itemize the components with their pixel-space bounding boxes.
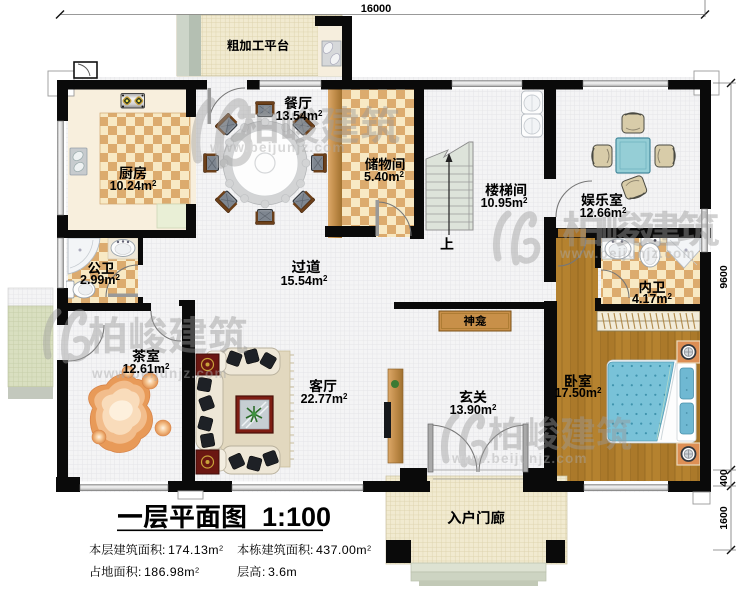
svg-text:13.90m2: 13.90m2 (450, 403, 497, 417)
svg-text:174.13m2: 174.13m2 (168, 543, 224, 557)
svg-text::: : (162, 543, 165, 557)
svg-text:17.50m2: 17.50m2 (555, 386, 602, 400)
svg-text::: : (310, 543, 313, 557)
svg-text:15.54m2: 15.54m2 (281, 274, 328, 288)
svg-text:437.00m2: 437.00m2 (316, 543, 372, 557)
svg-text:12.61m2: 12.61m2 (123, 362, 170, 376)
svg-text:2.99m2: 2.99m2 (80, 273, 120, 287)
svg-text:10.95m2: 10.95m2 (481, 196, 528, 210)
svg-text:www.beijunjz.com: www.beijunjz.com (209, 140, 346, 155)
svg-text:4.17m2: 4.17m2 (632, 292, 672, 306)
svg-text:www.beijunjz.com: www.beijunjz.com (451, 451, 588, 466)
svg-text:186.98m2: 186.98m2 (144, 565, 200, 579)
svg-text:12.66m2: 12.66m2 (580, 206, 627, 220)
svg-text:22.77m2: 22.77m2 (301, 392, 348, 406)
svg-text:16000: 16000 (361, 3, 392, 15)
svg-text:3.6m: 3.6m (268, 565, 297, 579)
svg-text:www.beijunjz.com: www.beijunjz.com (559, 246, 696, 261)
svg-text:400: 400 (718, 469, 730, 487)
svg-text::: : (262, 565, 265, 579)
svg-text::: : (138, 565, 141, 579)
svg-text:1600: 1600 (718, 506, 730, 530)
svg-text:10.24m2: 10.24m2 (110, 179, 157, 193)
svg-text:13.54m2: 13.54m2 (276, 109, 323, 123)
svg-text:9600: 9600 (718, 265, 730, 289)
svg-text:5.40m2: 5.40m2 (364, 170, 404, 184)
svg-text:1:100: 1:100 (262, 502, 331, 532)
